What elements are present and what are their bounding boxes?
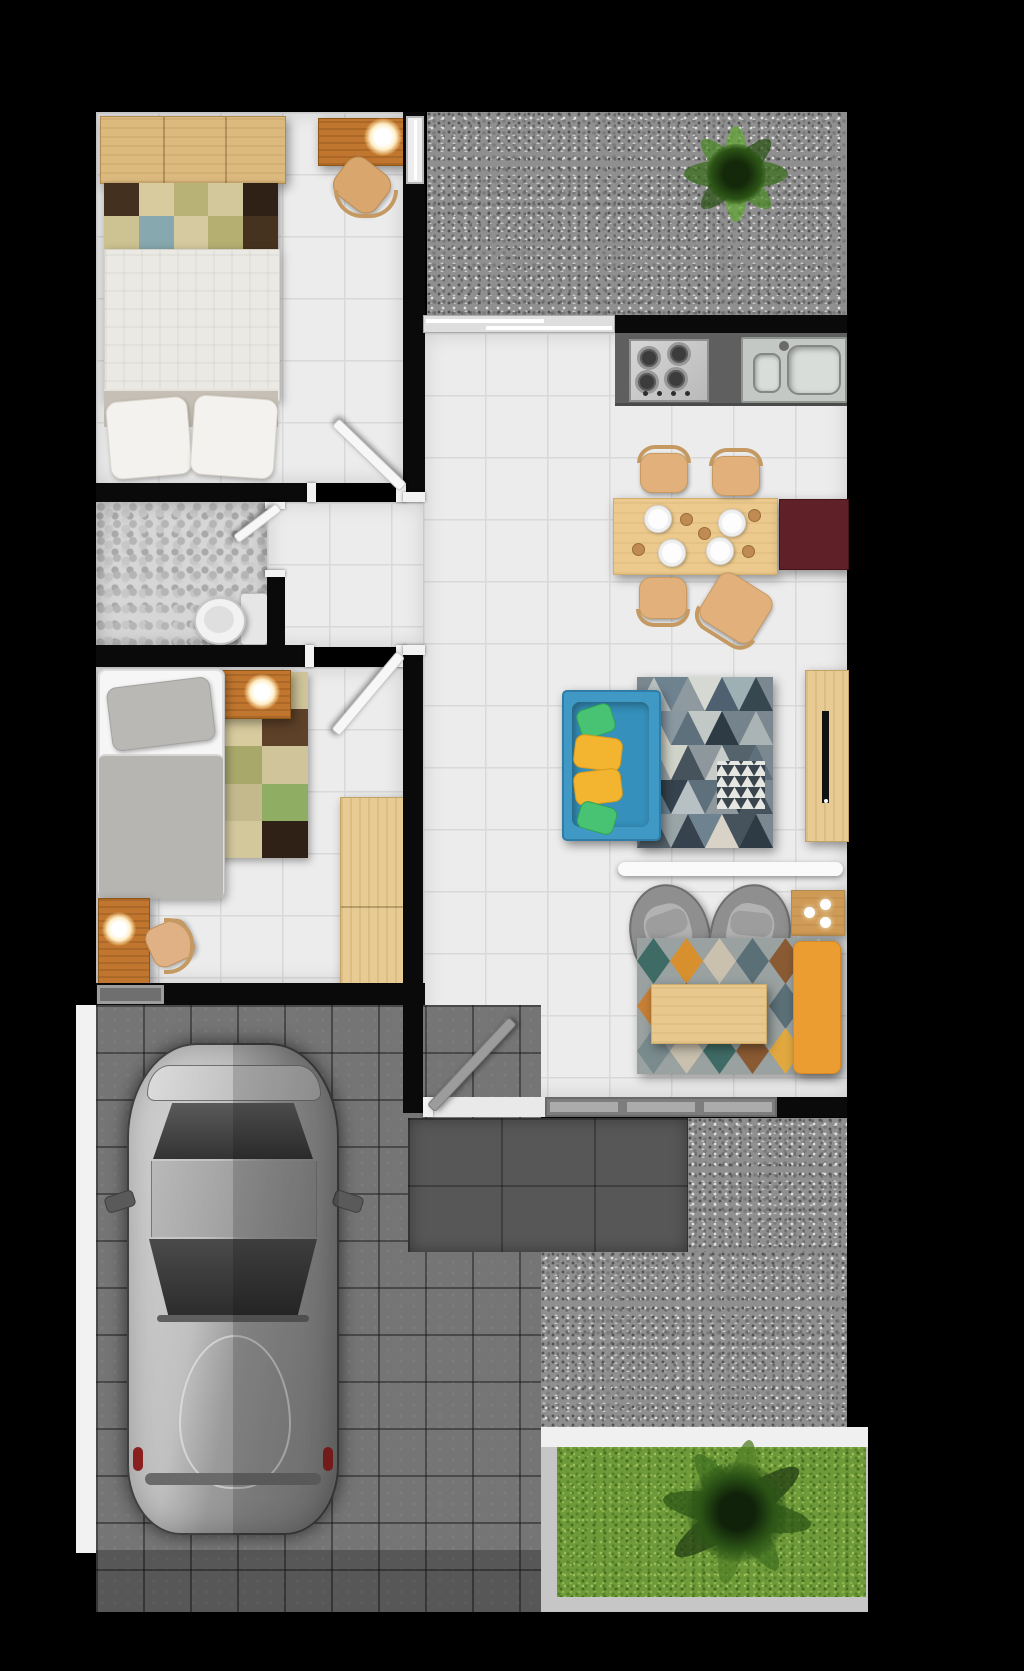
dining-chair (709, 450, 763, 502)
single-bed (97, 668, 225, 899)
bed-pillow (105, 396, 193, 481)
window-rail (414, 120, 417, 180)
rug-cell (139, 216, 174, 249)
rug-cell (262, 821, 308, 858)
burner (637, 346, 661, 370)
hob-knob (643, 391, 648, 396)
great-room-floor (423, 333, 847, 1097)
kitchen-sink (741, 337, 847, 403)
chair-back-arc (636, 609, 690, 627)
bed-duvet-gray (99, 754, 223, 899)
dresser-seam (225, 117, 227, 183)
light-dot (820, 917, 831, 928)
armchair-pillow (729, 910, 773, 938)
double-bed (104, 249, 278, 480)
porch (408, 1118, 688, 1252)
tree-core (687, 1462, 787, 1562)
sink-faucet (779, 341, 789, 351)
rug-cell (208, 216, 243, 249)
chair-back-arc (164, 918, 194, 974)
toilet-seat (204, 606, 234, 633)
sofa (562, 690, 661, 841)
paver-shadow (96, 1550, 541, 1612)
window-panel (627, 1102, 695, 1112)
courtyard-gravel (427, 112, 847, 318)
dining-chair (689, 561, 783, 655)
wall-living-south (777, 1097, 847, 1117)
plate (658, 539, 686, 567)
bedroom-main-rug (104, 183, 278, 249)
coffee-table (651, 984, 767, 1044)
cup (748, 509, 761, 522)
chair-back-arc (637, 445, 691, 463)
bedroom-second-chair (146, 918, 196, 970)
rug-cell (174, 216, 209, 249)
burner (667, 342, 691, 366)
hob-knob (671, 391, 676, 396)
sink-bowl-small (753, 353, 781, 393)
chair-back-arc (334, 190, 398, 218)
bathroom-floor (96, 502, 267, 647)
wall-kitchen-north (613, 315, 847, 333)
wall-bedroom-main-south (96, 483, 315, 502)
window-rail (426, 319, 544, 323)
rug-cell (174, 183, 209, 216)
light-dot (820, 899, 831, 910)
wardrobe (340, 797, 406, 986)
dining-table (613, 498, 778, 575)
burner (635, 370, 659, 394)
tv-sideboard (805, 670, 849, 842)
bedroom-main-chair (332, 160, 394, 218)
plate (718, 509, 746, 537)
rug-cell (262, 746, 308, 783)
light-dot (804, 907, 815, 918)
bed-pillow-gray (105, 676, 216, 752)
rug-cell (139, 183, 174, 216)
lower-gravel (541, 1252, 847, 1427)
hob-knob (657, 391, 662, 396)
courtyard-shrub (676, 114, 796, 234)
dining-chair (637, 447, 691, 499)
cup (742, 545, 755, 558)
bedroom-second-vent (97, 985, 164, 1004)
orange-daybed (793, 941, 841, 1074)
hob-knob (685, 391, 690, 396)
bed-pillow (189, 394, 278, 480)
rug-cell (243, 216, 278, 249)
wall-end-cap (403, 492, 425, 502)
bed-duvet (104, 249, 280, 401)
door-jamb (305, 645, 314, 667)
courtyard-window (406, 116, 424, 184)
rug-cell (104, 216, 139, 249)
dresser-seam (163, 117, 165, 183)
desk-lamp-glow (102, 912, 136, 946)
wall-bedroom-second-north (96, 645, 313, 667)
dining-chair (636, 571, 690, 625)
sofa-cushion-yellow (572, 733, 624, 773)
dresser (100, 116, 286, 184)
rug-cell (104, 183, 139, 216)
window-panel (704, 1102, 772, 1112)
side-table-lights (791, 890, 845, 936)
corridor-floor (267, 502, 425, 647)
door-jamb (307, 483, 316, 502)
plate (644, 505, 672, 533)
shrub-core (706, 144, 766, 204)
door-jamb (265, 570, 285, 577)
burgundy-sideboard (779, 499, 849, 570)
car-marker-left (133, 1447, 143, 1471)
wall-living-west (403, 655, 423, 1113)
tv (822, 711, 829, 803)
bedroom-main-floor (96, 112, 403, 483)
floor-plan (0, 0, 1024, 1671)
gas-hob (629, 339, 709, 402)
burner (664, 367, 688, 391)
sofa-cushion-yellow (572, 767, 624, 807)
divider-beam (618, 862, 843, 876)
wardrobe-seam (341, 906, 405, 908)
tv-stand-dot (824, 799, 828, 803)
side-gravel (688, 1118, 847, 1252)
cup (698, 527, 711, 540)
window-rail (486, 326, 612, 330)
living-window-sliding (545, 1097, 777, 1117)
kitchen-window (423, 315, 615, 333)
car (127, 1043, 339, 1535)
wall-end-cap (403, 645, 425, 655)
plate (706, 537, 734, 565)
window-panel (550, 1102, 618, 1112)
sink-bowl-main (787, 345, 841, 395)
walkway-white (76, 1005, 96, 1553)
rug-cell (243, 183, 278, 216)
car-shade-overlay (233, 1043, 339, 1535)
cup (632, 543, 645, 556)
desk-lamp-glow (364, 118, 402, 156)
rug-cell (262, 784, 308, 821)
rug-cell (208, 183, 243, 216)
garden-tree (642, 1427, 832, 1597)
chair-back-arc (709, 448, 763, 466)
cup (680, 513, 693, 526)
nightstand-lamp-glow (244, 674, 280, 710)
